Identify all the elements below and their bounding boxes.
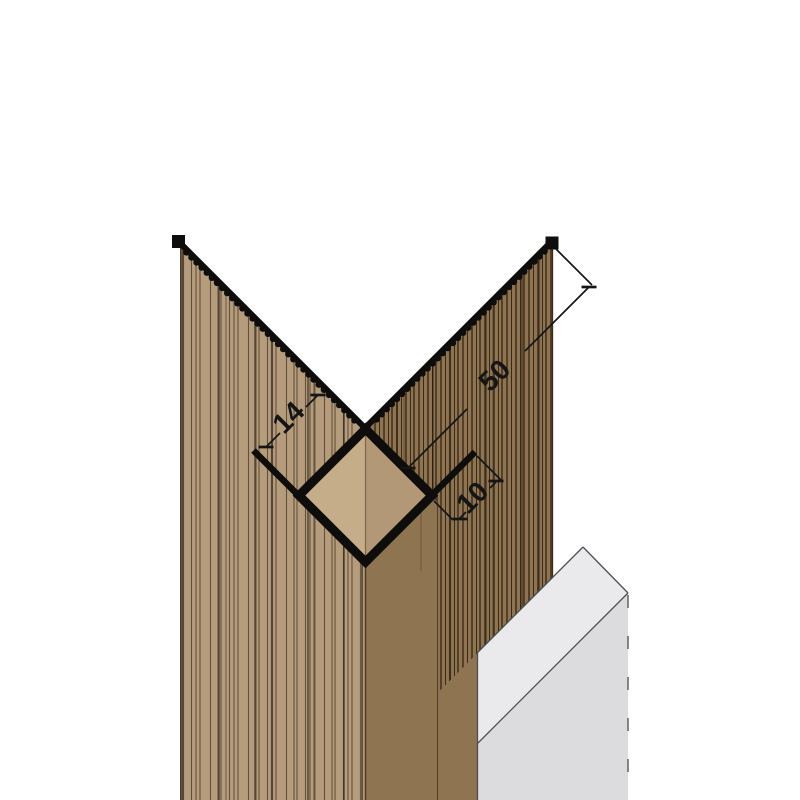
dimension-50-extension [556,249,592,285]
technical-drawing-page: 14 50 10 [0,0,800,800]
cut-edge-right-end-cap [546,237,559,250]
cut-edge-left-end-cap [172,235,185,248]
drawing-canvas: 14 50 10 [0,0,800,800]
